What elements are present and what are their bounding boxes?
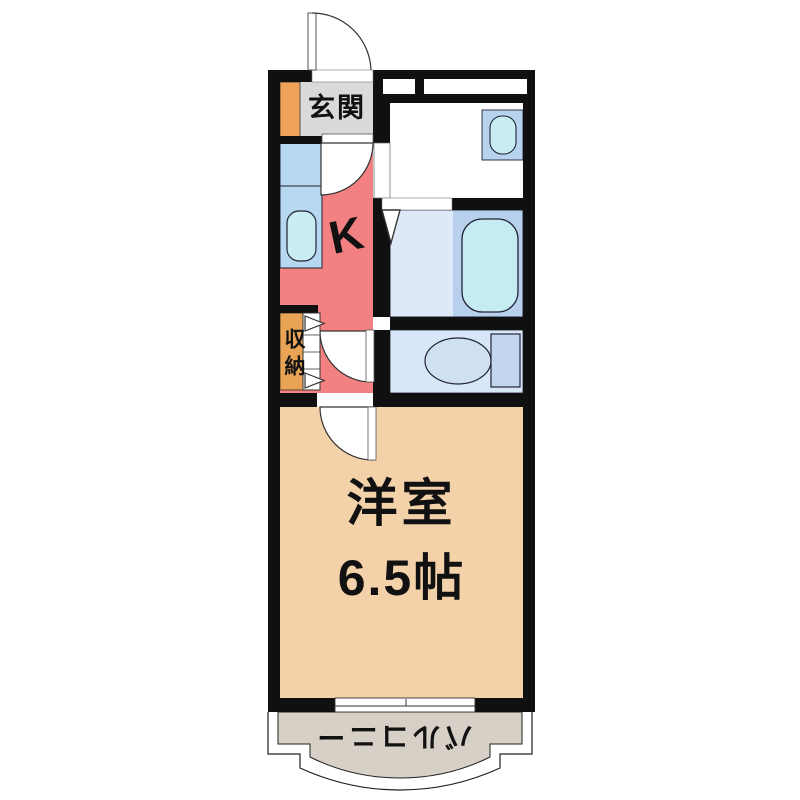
shoe-cabinet (280, 82, 300, 138)
western-room-doorway (317, 393, 373, 407)
wall-genkan-kitchen (280, 136, 322, 144)
western-room-size: 6.5帖 (280, 553, 523, 603)
genkan-label: 玄関 (300, 95, 374, 122)
western-room-label: 洋室 6.5帖 (280, 478, 523, 603)
bathroom-doorway (382, 198, 452, 210)
wall-left (268, 70, 280, 712)
bathtub (462, 219, 518, 312)
balcony-label: バルコニー (295, 722, 491, 750)
balcony-sliding-window (335, 698, 475, 712)
wall-room-top (280, 393, 523, 407)
washroom-doorway (374, 143, 390, 198)
toilet-door-leaf (366, 330, 374, 382)
kitchen-door-leaf (322, 134, 373, 143)
window-top-small (383, 79, 415, 94)
bathroom-floor (390, 210, 453, 317)
wall-top-left (268, 70, 312, 82)
toilet-bowl (425, 338, 491, 384)
wall-right (523, 70, 535, 712)
floor-plan: 玄関 K 収納 洋室 6.5帖 バルコニー (0, 0, 800, 800)
wall-storage-top (280, 305, 318, 313)
window-top-wide (424, 79, 527, 94)
entrance-door-leaf (308, 13, 316, 70)
storage-label: 収納 (281, 319, 304, 391)
wash-basin (490, 116, 516, 154)
entrance-door-arc (312, 13, 371, 70)
toilet-doorway (373, 317, 390, 330)
wall-bath-toilet (390, 317, 523, 330)
kitchen-sink (287, 211, 316, 261)
wall-divider-lower (373, 330, 390, 393)
wall-washroom-bath (452, 198, 523, 210)
entrance-doorway (312, 70, 373, 82)
western-room-door-leaf (368, 407, 376, 460)
wall-divider-upper (373, 103, 390, 143)
floor-plan-drawing (0, 0, 800, 800)
toilet-tank (491, 334, 520, 387)
western-room-name: 洋室 (280, 478, 523, 529)
